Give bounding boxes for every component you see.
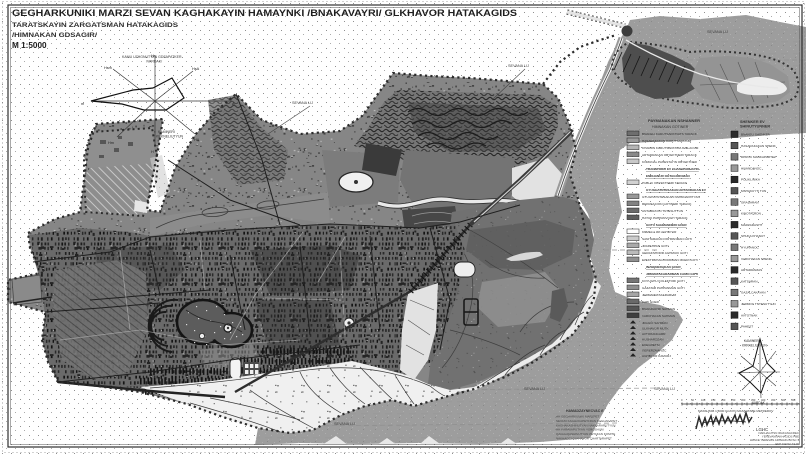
svg-text:VARCHAKAN SHENK: VARCHAKAN SHENK [741,257,772,261]
svg-text:GYUGHATNTESAKAN NSHANAKUTYAN: GYUGHATNTESAKAN NSHANAKUTYAN [642,195,700,199]
svg-text:KAGHAKASHINUTYAN NAKHARARUTYUN: KAGHAKASHINUTYAN NAKHARARUTYUN [556,423,615,427]
svg-text:KHARRN KARUTSAPATUM AVELACUM: KHARRN KARUTSAPATUM AVELACUM [642,146,699,150]
svg-text:SEVANA LIJ: SEVANA LIJ [707,30,728,34]
svg-text:GLKHAVOR MUTK: GLKHAVOR MUTK [642,327,670,331]
svg-text:EKEGHETSI: EKEGHETSI [642,343,660,347]
svg-text:SEVANI KAGHAKAPETARAN KAGHAKAP: SEVANI KAGHAKAPETARAN KAGHAKAPET [556,419,617,423]
svg-text:ARTADRAMAS: ARTADRAMAS [741,268,762,272]
svg-text:450: 450 [771,398,776,402]
svg-text:HsA: HsA [192,67,200,71]
svg-text:HA: HA [194,138,200,142]
svg-text:SHINUTYUNNER: SHINUTYUNNER [740,125,770,129]
svg-text:GOTU SAHMANNERI GCER: GOTU SAHMANNERI GCER [646,223,687,227]
svg-text:ARTADRAKAN OBYEKTNERI TARACK: ARTADRAKAN OBYEKTNERI TARACK [642,153,698,157]
svg-text:KAPI GCER: KAPI GCER [642,300,660,304]
svg-text:/VARDAK/: /VARDAK/ [146,60,162,64]
svg-text:MARZADASHT: MARZADASHT [741,223,762,227]
svg-text:BNAKAVAYRI SAHMAN: BNAKAVAYRI SAHMAN [642,307,675,311]
svg-text:HASARAKAKAN SHENK: HASARAKAKAN SHENK [741,144,777,148]
svg-text:AGHBYUR KAMURJ: AGHBYUR KAMURJ [642,354,671,358]
svg-text:PAYMANAKAN NSHANNER: PAYMANAKAN NSHANNER [648,118,700,123]
svg-text:HYURANOC: HYURANOC [741,246,759,250]
svg-text:KHMELU JRI AGHBYUR: KHMELU JRI AGHBYUR [642,230,677,234]
svg-text:H: H [151,150,154,154]
svg-text:550: 550 [791,398,796,402]
svg-text:Hsm: Hsm [104,66,112,70]
svg-text:GERERZMANOC: GERERZMANOC [642,349,667,353]
svg-text:DPROC MANKAPARTEZ: DPROC MANKAPARTEZ [741,155,776,159]
svg-text:KATSARAN: KATSARAN [741,279,757,283]
svg-text:100: 100 [701,398,706,402]
svg-text:NAKHAGCI GLKHAVOR CHARTARAPET: NAKHAGCI GLKHAVOR CHARTARAPET [556,437,612,441]
svg-text:KOYUGHU KOLEKTORI GOTI: KOYUGHU KOLEKTORI GOTI [642,279,685,283]
svg-text:MSHAKUYTI TUN: MSHAKUYTI TUN [741,189,766,193]
svg-text:Hm: Hm [108,141,114,145]
svg-text:350: 350 [751,398,756,402]
svg-text:HAMADZAYNECVAC E: HAMADZAYNECVAC E [566,409,604,413]
svg-text:SEVANA LIJ: SEVANA LIJ [334,422,355,426]
svg-text:INZHENERAKAN GCER: INZHENERAKAN GCER [646,265,681,269]
svg-text:HH KARAVARUTYAN VOROSHUM: HH KARAVARUTYAN VOROSHUM [556,428,604,432]
svg-text:KAMINERI: KAMINERI [744,339,760,343]
svg-text:TRANSPORTI EV CHANAPARHAYIN: TRANSPORTI EV CHANAPARHAYIN [646,167,700,171]
svg-text:HEP 010 52-77-00: HEP 010 52-77-00 [775,442,799,446]
svg-text:PUBLIC OBYEKTNERI TARACK: PUBLIC OBYEKTNERI TARACK [642,181,688,185]
svg-text:SEVANA LIJ: SEVANA LIJ [524,387,545,391]
svg-text:Hs: Hs [151,54,156,58]
svg-text:GAZATAR PAHPANMAN GOTI: GAZATAR PAHPANMAN GOTI [642,286,685,290]
svg-text:m: m [81,102,84,106]
svg-text:REKREACION GOTINERI TARACK: REKREACION GOTINERI TARACK [642,202,692,206]
svg-text:250: 250 [731,398,736,402]
svg-text:JERMAMATAKARARUM: JERMAMATAKARARUM [642,293,677,297]
svg-text:JRAMATAKARARMAN CANCI GOTI: JRAMATAKARARMAN CANCI GOTI [646,272,698,276]
svg-text:TARATSKAYIN ZARGATSMAN HATAKAG: TARATSKAYIN ZARGATSMAN HATAKAGIDS [12,22,179,29]
svg-text:HUSHARDZAN: HUSHARDZAN [642,338,664,342]
svg-text:ANTARRAYIN TNTESUTYUN: ANTARRAYIN TNTESUTYUN [642,209,683,213]
svg-text:ELEKTRAHAGHORDMAN GCERI GOTI: ELEKTRAHAGHORDMAN GCERI GOTI [642,258,698,262]
svg-text:SEVANA LIJ: SEVANA LIJ [654,387,675,391]
svg-text:150: 150 [711,398,716,402]
svg-text:KINOTATRON: KINOTATRON [741,212,761,216]
svg-text:HASARAKAKAN KARUTSAPATUM: HASARAKAKAN KARUTSAPATUM [642,139,691,143]
svg-text:BNAKELI KARUTSAPATVATS TARACK: BNAKELI KARUTSAPATVATS TARACK [642,132,698,136]
svg-text:BNAKELI SHENKER: BNAKELI SHENKER [741,133,771,137]
svg-text:KAMINERI: KAMINERI [158,130,175,134]
svg-text:QAGHAQASHINUTYAN PETAKAN KOMIT: QAGHAQASHINUTYAN PETAKAN KOMITE [556,432,615,436]
svg-text:HATUK PAHPANVOGH TARACK: HATUK PAHPANVOGH TARACK [642,216,689,220]
svg-text:MASSHTAB 1:5000 GCAYIN MASSHTA: MASSHTAB 1:5000 GCAYIN MASSHTABE METRERO… [698,409,773,413]
svg-text:300: 300 [741,398,746,402]
svg-text:SANITARAKAN PAHPANMAN GOTI: SANITARAKAN PAHPANMAN GOTI [642,237,692,241]
svg-text:/HIMNAKAN GDSAGIR/: /HIMNAKAN GDSAGIR/ [12,32,97,39]
svg-text:POLIKLINIKA: POLIKLINIKA [741,178,761,182]
svg-text:AVTOKANGARR: AVTOKANGARR [642,332,666,336]
svg-text:SEVANA LIJ: SEVANA LIJ [292,101,313,105]
svg-text:JERMOC TNTESUTYUN: JERMOC TNTESUTYUN [741,302,776,306]
svg-text:SHUKA KHANUT: SHUKA KHANUT [741,234,765,238]
svg-text:GERAKSHORR AGHMUKI GOTI: GERAKSHORR AGHMUKI GOTI [642,251,688,255]
svg-text:500: 500 [781,398,786,402]
svg-text:KOMUNAL PAHESTAYIN OBYEKTNER: KOMUNAL PAHESTAYIN OBYEKTNER [642,160,698,164]
svg-text:SHENKER EV: SHENKER EV [740,120,765,124]
svg-text:SEVANA LIJ: SEVANA LIJ [508,64,529,68]
svg-text:HIMNAKAN GOTINER: HIMNAKAN GOTINER [652,125,689,129]
svg-text:200: 200 [721,398,726,402]
svg-text:JRAGCI SAHMAN: JRAGCI SAHMAN [642,321,667,325]
svg-text:AVTOTNAK: AVTOTNAK [741,313,758,317]
svg-text:JRAPAHPAN GOTI: JRAPAHPAN GOTI [642,244,669,248]
svg-text:HIVANDANOC: HIVANDANOC [741,166,762,170]
svg-text:400: 400 [761,398,766,402]
svg-text:VARCHAKAN SAHMAN: VARCHAKAN SAHMAN [642,314,675,318]
svg-text:HH GEGHARKUNIKI MARZPET: HH GEGHARKUNIKI MARZPET [556,415,600,419]
svg-text:KRKNELIUTYUN: KRKNELIUTYUN [742,344,767,348]
svg-text:GEGHARKUNIKI MARZI SEVAN KAGHA: GEGHARKUNIKI MARZI SEVAN KAGHAKAYIN HAMA… [12,8,517,18]
svg-text:PAHEST: PAHEST [741,325,753,329]
svg-text:ENDHANUR OGTAGORCMAN: ENDHANUR OGTAGORCMAN [646,174,690,178]
svg-text:KRKNELIUTYUN: KRKNELIUTYUN [156,135,184,139]
svg-text:M 1:5000: M 1:5000 [12,41,47,50]
svg-text:GYUGHATNTESAKAN ARTADRAKAN EV: GYUGHATNTESAKAN ARTADRAKAN EV [646,188,707,192]
svg-text:GRADARAN: GRADARAN [741,200,759,204]
svg-text:GAZALCAKAYAN: GAZALCAKAYAN [741,291,765,295]
